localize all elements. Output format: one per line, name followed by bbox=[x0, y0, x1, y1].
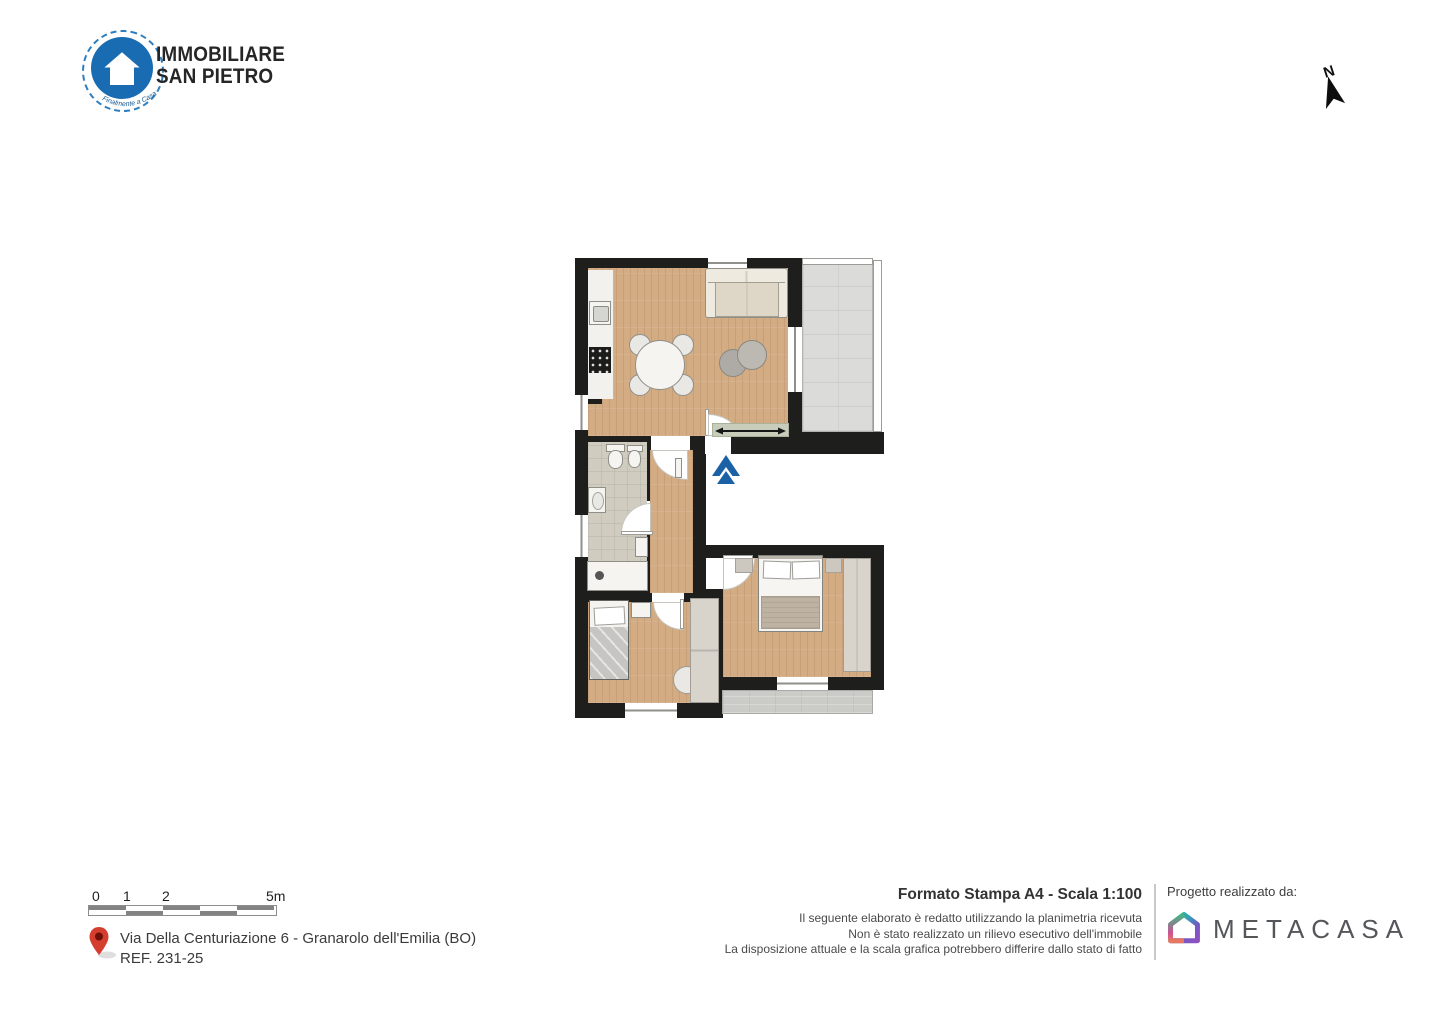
window-main-bedroom-bottom bbox=[777, 677, 828, 690]
double-bed-headboard bbox=[759, 556, 822, 559]
bedroom2-wardrobe bbox=[690, 598, 719, 703]
bidet bbox=[627, 445, 643, 469]
address-ref: REF. 231-25 bbox=[120, 949, 476, 969]
footer-divider bbox=[1154, 884, 1156, 960]
pouf bbox=[737, 340, 767, 370]
entrance-arrow-icon bbox=[712, 455, 740, 489]
north-arrow: N bbox=[1312, 60, 1356, 114]
scale-label-2: 2 bbox=[162, 888, 170, 904]
doormat-arrow-icon bbox=[713, 425, 788, 437]
bathroom-sink bbox=[588, 487, 606, 513]
bathroom-sink-basin bbox=[592, 492, 604, 510]
balcony-right-railing bbox=[873, 260, 882, 432]
north-arrow-icon: N bbox=[1312, 60, 1356, 114]
double-bed-pillow bbox=[763, 561, 792, 580]
print-info: Formato Stampa A4 - Scala 1:100 Il segue… bbox=[700, 886, 1142, 958]
wall-stub-kitchen bbox=[588, 399, 602, 404]
single-bed-blanket bbox=[590, 627, 628, 679]
disclaimer-line2: Non è stato realizzato un rilievo esecut… bbox=[700, 927, 1142, 943]
sofa bbox=[705, 268, 788, 318]
kitchen-sink-basin bbox=[593, 306, 609, 322]
dining-table bbox=[635, 340, 685, 390]
disclaimer-line3: La disposizione attuale e la scala grafi… bbox=[700, 942, 1142, 958]
balcony-bottom-floor bbox=[722, 690, 873, 714]
address-line1: Via Della Centuriazione 6 - Granarolo de… bbox=[120, 929, 476, 949]
scale-label-5m: 5m bbox=[266, 888, 285, 904]
balcony-top-railing bbox=[802, 258, 873, 265]
toilet-bowl bbox=[608, 450, 623, 469]
toilet bbox=[606, 444, 625, 470]
sofa-seat bbox=[715, 282, 779, 317]
bidet-bowl bbox=[628, 450, 641, 468]
floorplan bbox=[575, 258, 885, 718]
bedroom2-nightstand bbox=[631, 602, 651, 618]
double-bed-blanket bbox=[761, 596, 820, 629]
doormat bbox=[712, 423, 789, 437]
scale-bar bbox=[88, 905, 277, 916]
window-bathroom-left bbox=[575, 515, 588, 557]
metacasa-house-icon bbox=[1167, 911, 1201, 945]
svg-text:Finalmente a Casa: Finalmente a Casa bbox=[101, 90, 158, 108]
scale-bar-segment bbox=[89, 906, 126, 910]
credits: Progetto realizzato da: METACASA bbox=[1167, 884, 1427, 949]
double-bed-pillow bbox=[792, 561, 821, 580]
agency-name: IMMOBILIARE SAN PIETRO bbox=[156, 44, 285, 88]
bathroom-door-leaf bbox=[621, 531, 653, 535]
hallway-shelf bbox=[675, 458, 682, 478]
entrance-door-gap bbox=[705, 436, 731, 454]
scale-bar-segment bbox=[237, 906, 274, 910]
window-bedroom2-bottom bbox=[625, 703, 677, 718]
print-format-title: Formato Stampa A4 - Scala 1:100 bbox=[700, 886, 1142, 904]
single-bed bbox=[589, 600, 629, 680]
metacasa-wordmark: METACASA bbox=[1213, 914, 1410, 945]
footer-left: 0 1 2 5m Via Della Centuriazione 6 - Gra… bbox=[88, 888, 508, 978]
scale-bar-segment bbox=[200, 911, 237, 915]
scale-bar-segment bbox=[126, 911, 163, 915]
nightstand bbox=[735, 558, 753, 573]
wall-balcony-bottom bbox=[795, 432, 884, 454]
bedroom2-door-leaf bbox=[680, 599, 684, 629]
showerhead-icon bbox=[595, 571, 604, 580]
scale-label-0: 0 bbox=[92, 888, 100, 904]
double-bed bbox=[758, 555, 823, 632]
nightstand bbox=[825, 558, 842, 573]
credits-label: Progetto realizzato da: bbox=[1167, 884, 1427, 899]
kitchen-hob bbox=[589, 347, 611, 373]
scale-label-1: 1 bbox=[123, 888, 131, 904]
property-address: Via Della Centuriazione 6 - Granarolo de… bbox=[120, 929, 476, 968]
sofa-back bbox=[708, 271, 785, 283]
single-bed-pillow bbox=[594, 606, 626, 626]
disclaimer-line1: Il seguente elaborato è redatto utilizza… bbox=[700, 911, 1142, 927]
location-pin-icon bbox=[88, 926, 118, 960]
scale-bar-segment bbox=[163, 906, 200, 910]
hallway-door-gap bbox=[651, 436, 690, 450]
balcony-top-floor bbox=[802, 264, 873, 432]
kitchen-counter bbox=[588, 270, 614, 399]
agency-name-line2: SAN PIETRO bbox=[156, 66, 285, 88]
window-balcony-door bbox=[788, 327, 802, 392]
agency-logo: Finalmente a Casa IMMOBILIARE SAN PIETRO bbox=[80, 26, 400, 116]
main-bedroom-wardrobe bbox=[843, 558, 871, 672]
kitchen-sink bbox=[589, 301, 611, 325]
agency-name-line1: IMMOBILIARE bbox=[156, 44, 285, 66]
window-living-left bbox=[575, 395, 588, 430]
window-living-top bbox=[708, 258, 747, 268]
main-bedroom-door-gap bbox=[706, 558, 723, 589]
bathroom-cabinet bbox=[635, 537, 648, 557]
